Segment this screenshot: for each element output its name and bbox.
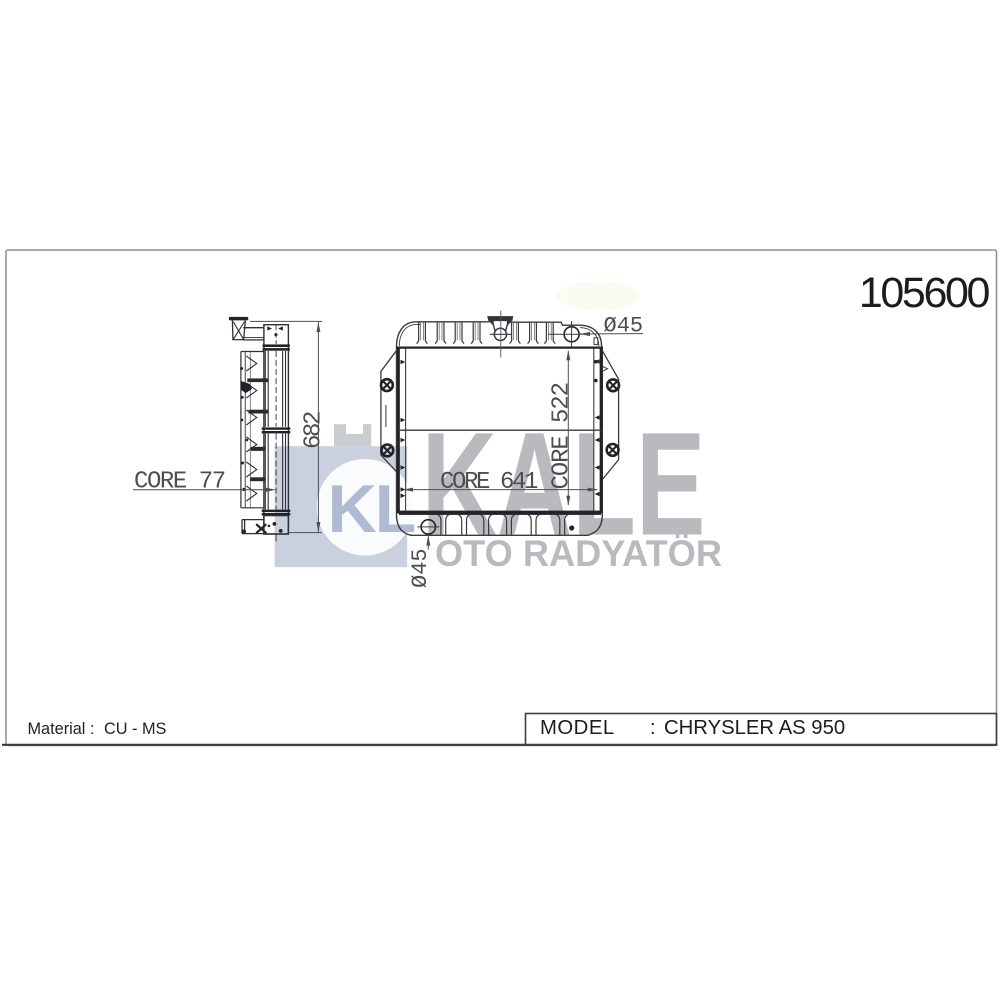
svg-text:Material: Material — [28, 720, 86, 738]
svg-text:MODEL: MODEL — [540, 717, 615, 739]
svg-text:Ø45: Ø45 — [604, 314, 644, 339]
svg-text:KL: KL — [328, 471, 415, 547]
svg-text:OTO RADYATÖR: OTO RADYATÖR — [435, 533, 722, 574]
svg-text:CU - MS: CU - MS — [104, 720, 167, 738]
svg-text:CORE 77: CORE 77 — [134, 469, 225, 496]
svg-text:CHRYSLER AS 950: CHRYSLER AS 950 — [664, 717, 845, 739]
svg-text:Ø45: Ø45 — [408, 548, 433, 588]
svg-text:105600: 105600 — [859, 269, 990, 317]
svg-text:CORE 522: CORE 522 — [548, 383, 575, 489]
svg-text:CORE 641: CORE 641 — [440, 469, 538, 496]
svg-text::: : — [90, 720, 95, 738]
svg-text:682: 682 — [301, 412, 328, 449]
svg-text::: : — [650, 717, 656, 739]
